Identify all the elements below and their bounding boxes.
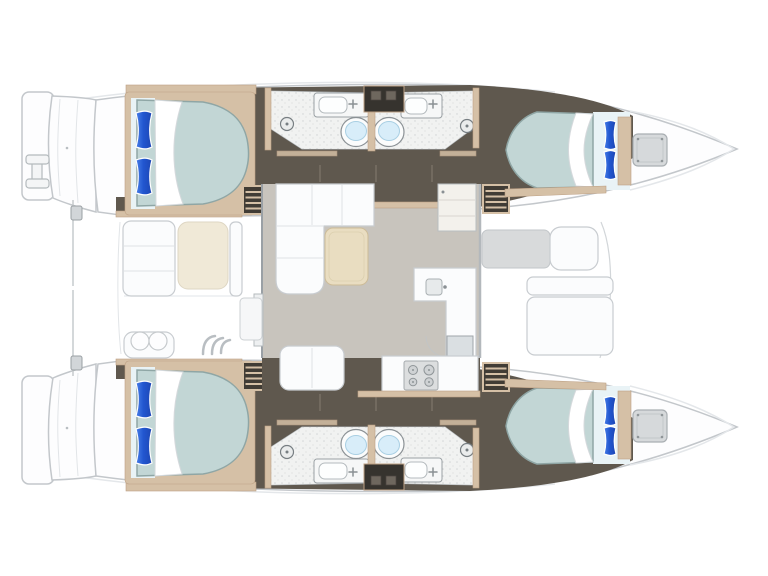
sink-basin <box>405 98 427 114</box>
bed-mattress <box>137 100 249 206</box>
bed-pillow <box>604 121 616 150</box>
bed-pillow <box>136 111 152 149</box>
aft-cabin-bed <box>125 92 255 215</box>
fridge-cabinet <box>438 184 476 231</box>
door-step <box>240 298 262 340</box>
mooring-cleat <box>71 206 82 220</box>
galley-stove <box>404 361 438 390</box>
forward-cockpit <box>482 222 613 358</box>
bed-pillow <box>136 158 152 195</box>
bed-pillow <box>604 151 616 180</box>
foredeck-bench <box>550 227 598 270</box>
cockpit-seat <box>123 221 175 296</box>
catamaran-floorplan-canvas <box>0 0 768 576</box>
wet-locker-cabinet <box>364 86 404 112</box>
cockpit-cushion <box>178 222 228 289</box>
saloon-table <box>325 228 368 285</box>
counter-sink <box>426 279 442 295</box>
helm-double-seat <box>124 332 174 358</box>
cockpit-side-seat <box>230 222 242 296</box>
forward-door <box>447 336 473 357</box>
catamaran-floorplan <box>0 0 768 576</box>
foredeck-bench-gray <box>482 230 550 268</box>
aft-cockpit <box>118 221 262 358</box>
sunpad-headrest <box>527 277 613 295</box>
bow-hatch <box>633 134 667 166</box>
cockpit-steps <box>203 336 230 354</box>
bed-headboard <box>618 117 631 185</box>
sunpad <box>527 297 613 355</box>
sink-basin <box>319 97 347 113</box>
saloon <box>254 184 480 397</box>
transom-steps <box>48 96 96 212</box>
faucet-icon <box>443 285 447 289</box>
